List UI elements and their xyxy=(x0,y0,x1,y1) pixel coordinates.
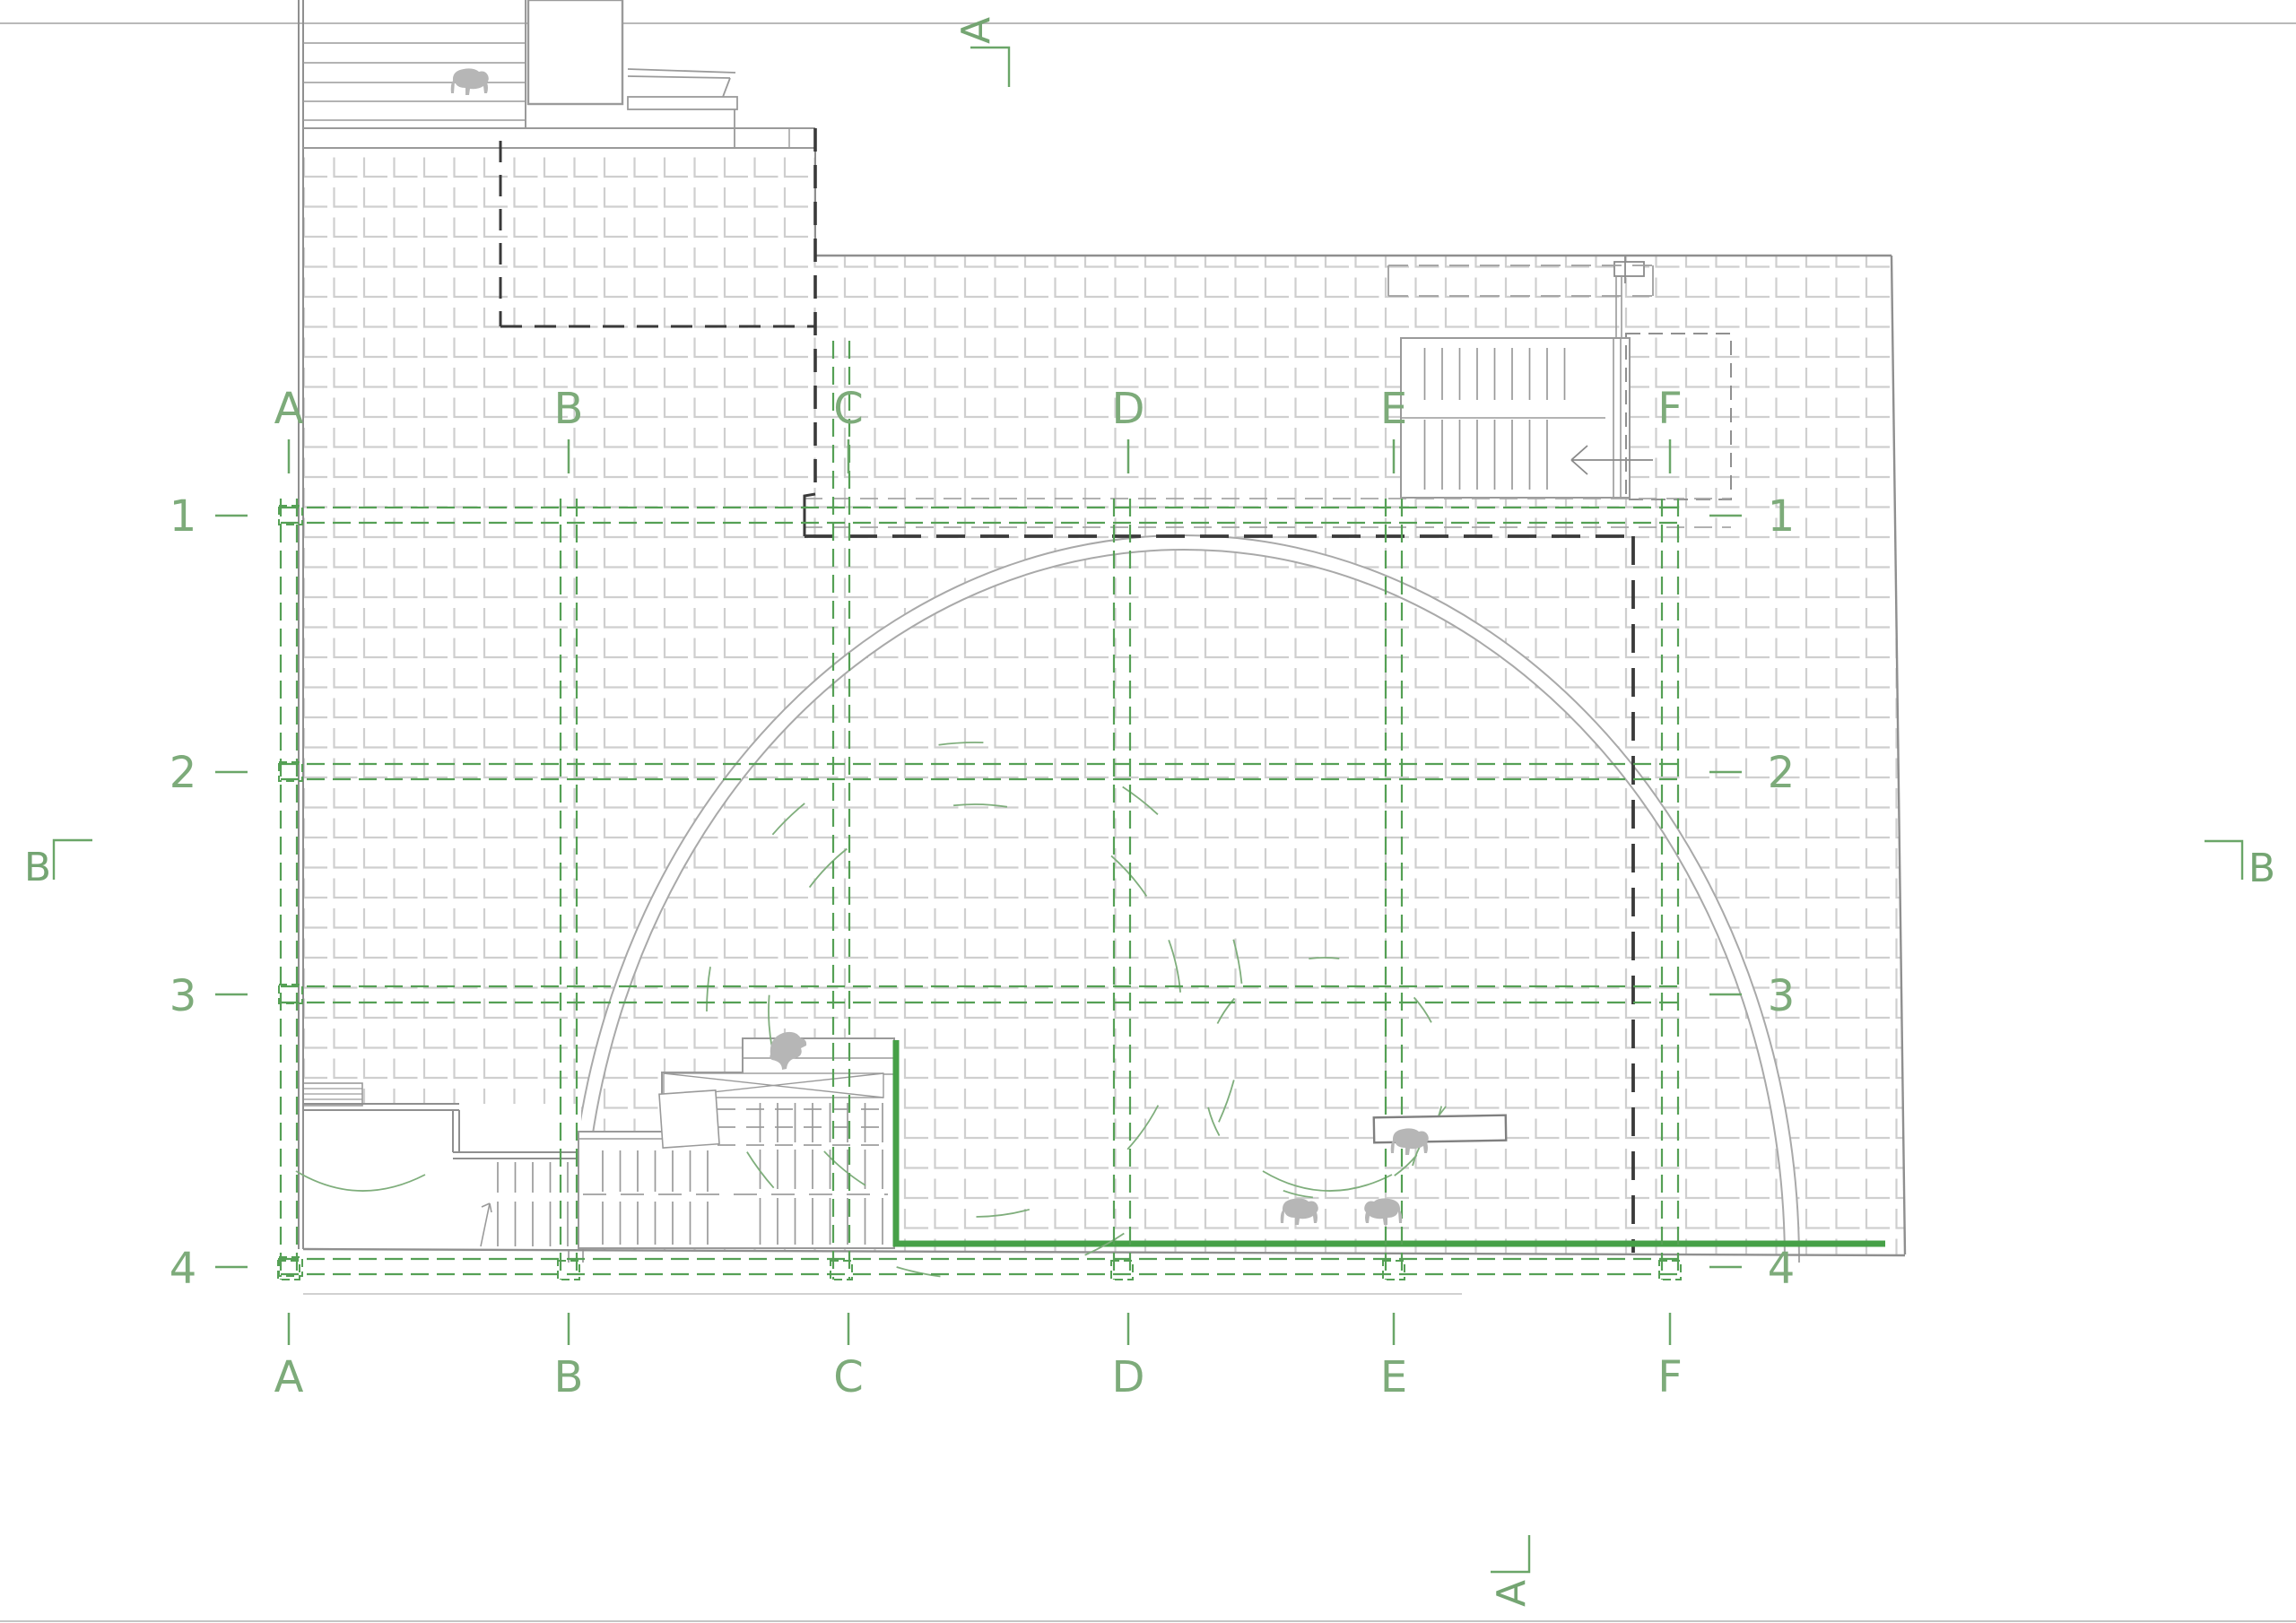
grid-label-D-top: D xyxy=(1112,384,1145,434)
stair-landing xyxy=(659,1090,719,1148)
grid-label-1-left: 1 xyxy=(170,491,197,542)
lower-left-room xyxy=(303,1083,581,1249)
floor-plan-page: A B C D E F A B C D E F 1 2 3 4 1 2 3 4 … xyxy=(0,0,2296,1623)
elephant-icon xyxy=(451,68,489,95)
section-marker-b-left-label: B xyxy=(24,845,51,890)
stair-treads xyxy=(1413,420,1559,490)
section-marker-a-bottom-label: A xyxy=(1489,1580,1535,1607)
grid-label-B-bottom: B xyxy=(554,1352,584,1402)
stair-treads xyxy=(1413,348,1575,400)
grid-label-2-left: 2 xyxy=(170,748,197,798)
stair-treads xyxy=(744,1103,883,1142)
grid-label-D-bottom: D xyxy=(1112,1352,1145,1402)
gridline-4 xyxy=(281,1259,1678,1274)
roof-railing xyxy=(628,69,737,148)
grid-label-1-right: 1 xyxy=(1768,491,1796,542)
section-marker-b-right: B xyxy=(2205,841,2275,891)
grid-label-A-bottom: A xyxy=(274,1352,304,1402)
grid-label-3-right: 3 xyxy=(1768,971,1796,1021)
gridline-A xyxy=(281,499,297,1280)
grid-label-E-top: E xyxy=(1380,384,1407,434)
building-footprint-hatch xyxy=(303,148,1905,1254)
roof-fixture xyxy=(1614,262,1644,276)
grid-label-C-top: C xyxy=(833,384,864,434)
grid-label-4-right: 4 xyxy=(1768,1244,1796,1294)
stair-treads xyxy=(587,1202,722,1245)
grid-label-F-bottom: F xyxy=(1657,1352,1683,1402)
floor-plan-canvas: A B C D E F A B C D E F 1 2 3 4 1 2 3 4 … xyxy=(0,0,2296,1623)
section-marker-a-top: A xyxy=(953,17,1009,87)
section-marker-a-bottom: A xyxy=(1489,1535,1535,1607)
stair-treads xyxy=(744,1198,883,1245)
grid-label-C-bottom: C xyxy=(833,1352,864,1402)
stair-treads xyxy=(482,1162,578,1193)
skylight-box xyxy=(528,0,622,104)
grid-label-4-left: 4 xyxy=(170,1244,197,1294)
grid-label-2-right: 2 xyxy=(1768,748,1796,798)
section-marker-b-right-label: B xyxy=(2248,846,2275,891)
section-marker-b-left: B xyxy=(24,840,92,890)
grid-label-E-bottom: E xyxy=(1380,1352,1407,1402)
grid-label-3-left: 3 xyxy=(170,971,197,1021)
grid-label-A-top: A xyxy=(274,384,304,434)
stair-treads xyxy=(587,1150,722,1192)
stair-treads xyxy=(482,1202,578,1246)
section-marker-a-top-label: A xyxy=(953,17,999,44)
grid-label-B-top: B xyxy=(554,384,584,434)
grid-label-F-top: F xyxy=(1657,384,1683,434)
